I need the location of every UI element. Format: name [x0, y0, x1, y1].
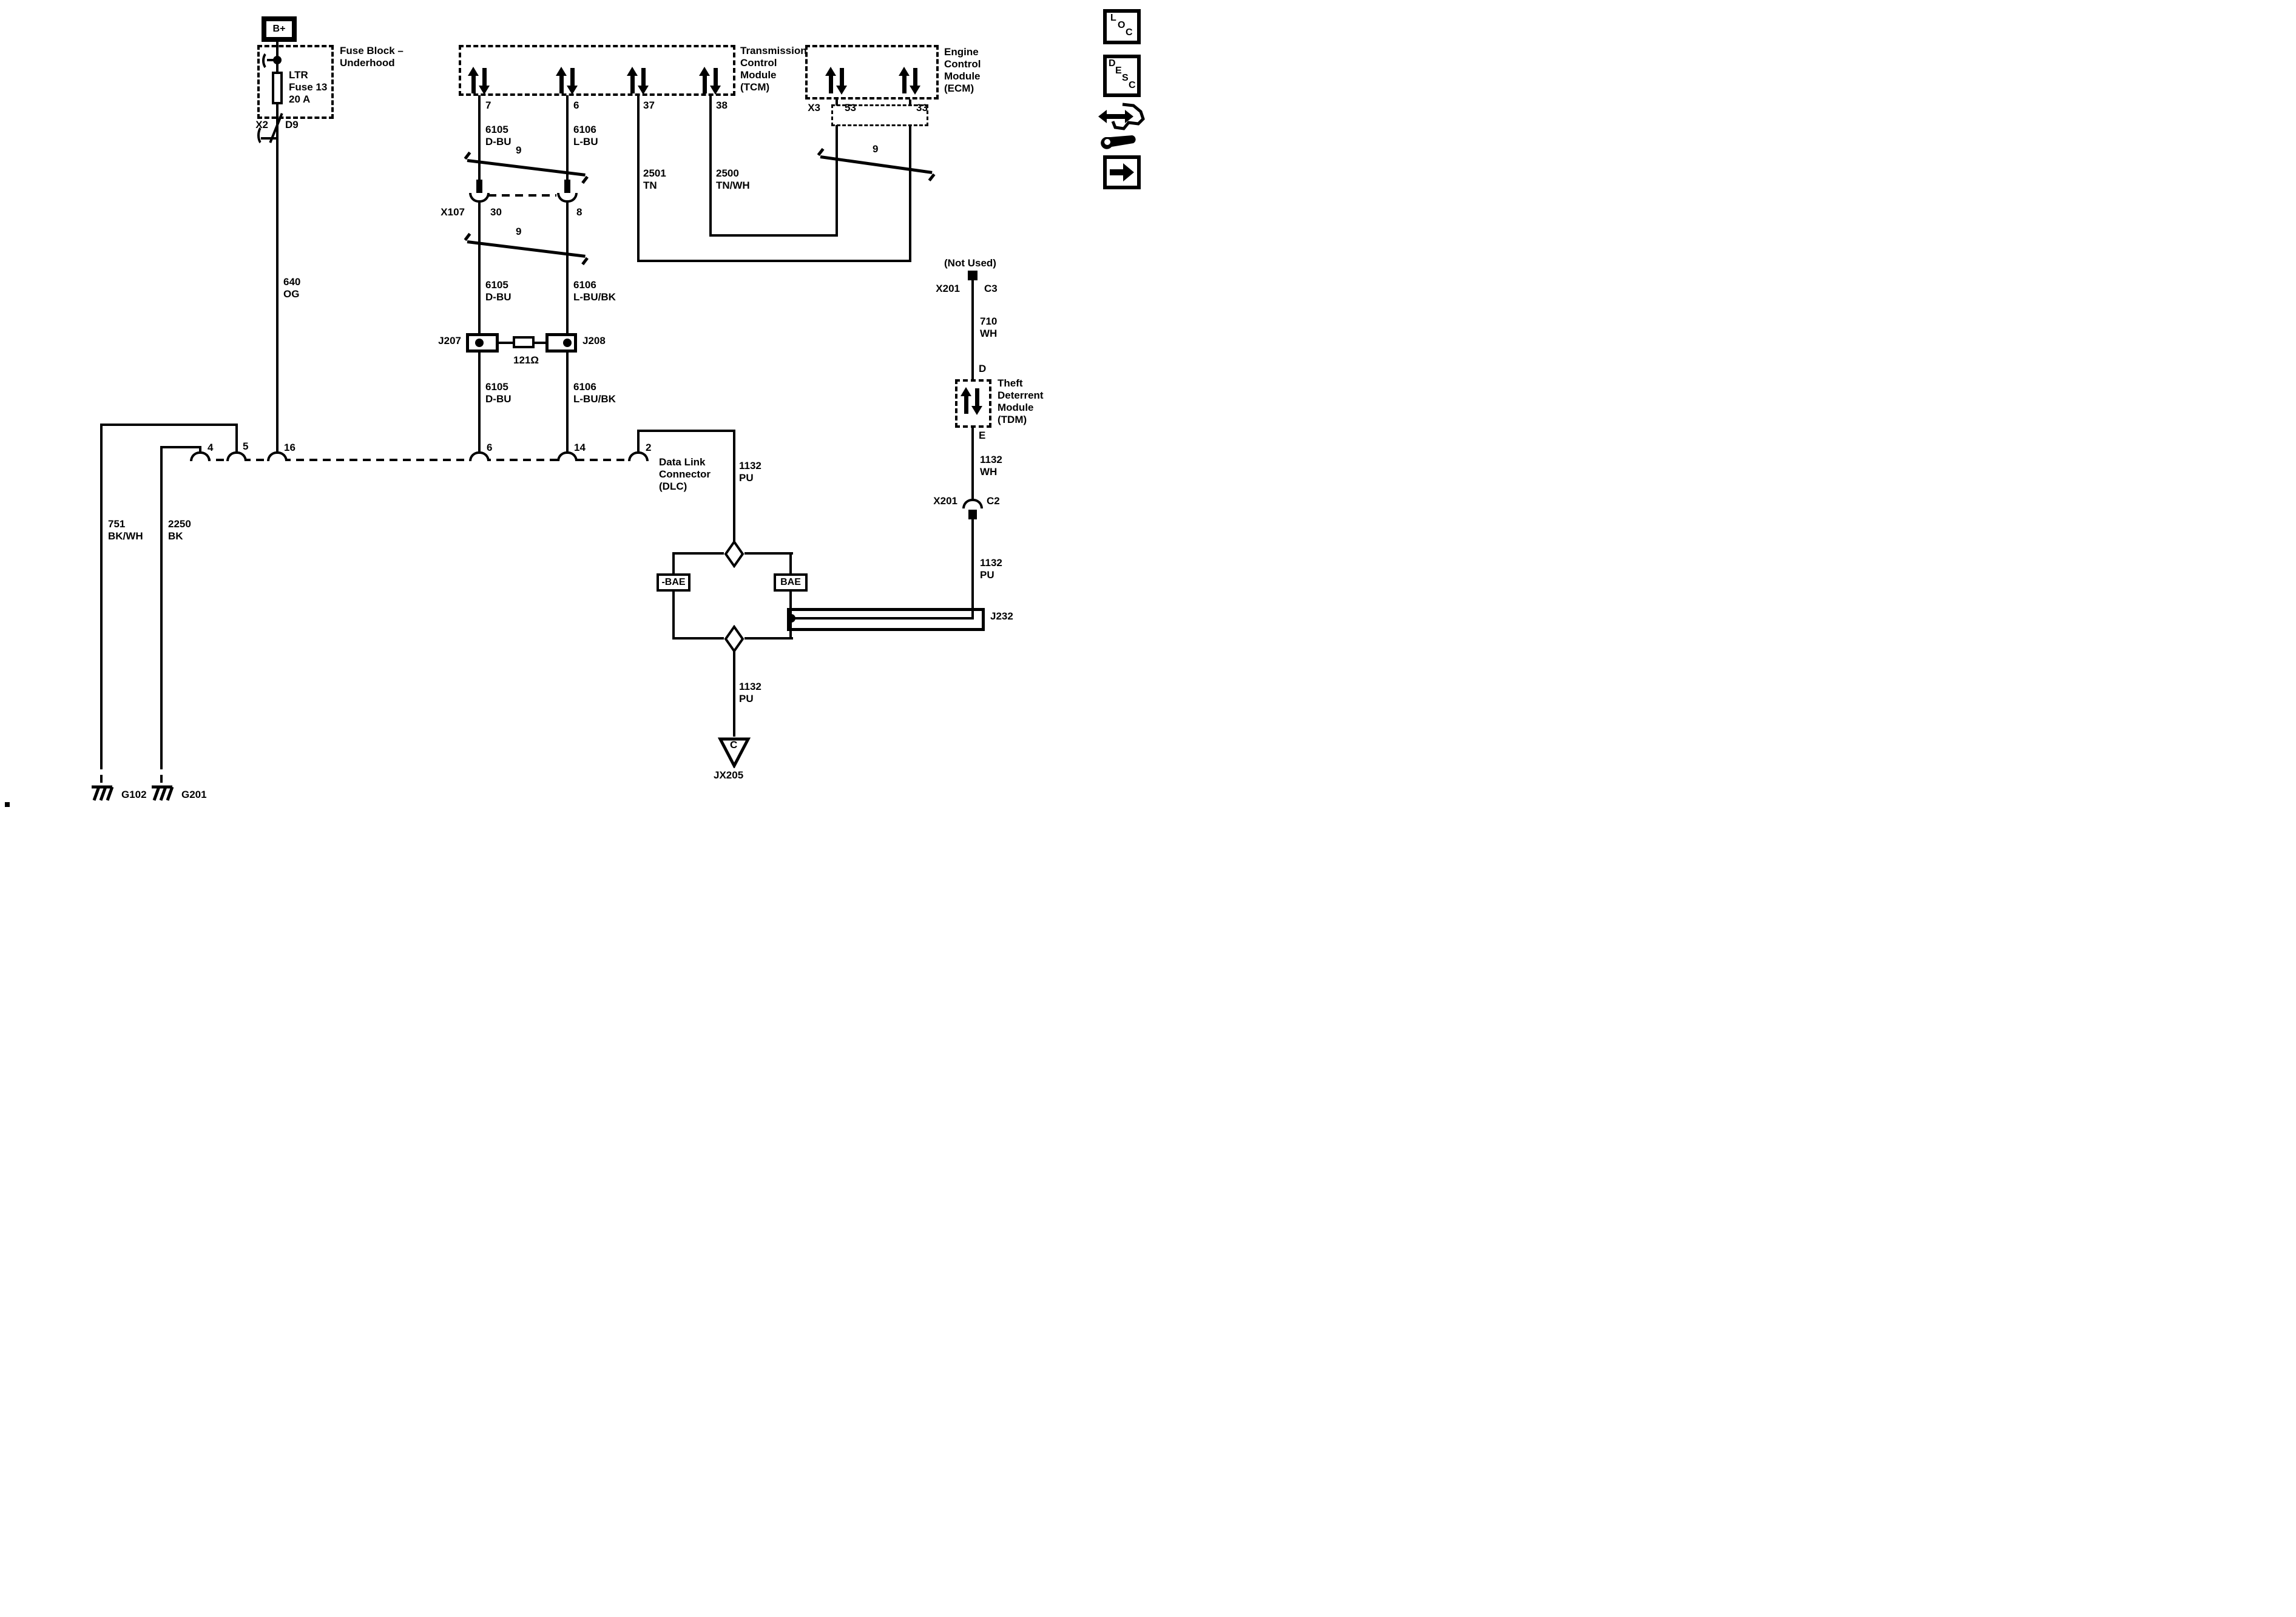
tcm-title: Transmission Control Module (TCM): [740, 45, 807, 93]
wire-1132-pu-label-bottom: 1132 PU: [739, 681, 761, 705]
wire-6105-lower: [478, 353, 481, 451]
x107-pin8-stub: [564, 180, 570, 193]
j208-junction-dot: [563, 339, 572, 347]
wire-2250-dashed: [160, 761, 163, 786]
resistor-value-label: 121Ω: [513, 354, 539, 366]
j208-label: J208: [582, 335, 606, 347]
wire-2500-up: [836, 125, 838, 237]
wire-710-wh: [971, 280, 974, 380]
x2-d9-tick: [261, 137, 277, 140]
twisted-pair-label-2: 9: [516, 226, 521, 238]
fuse-label: LTR Fuse 13 20 A: [289, 69, 327, 106]
forward-arrow-button[interactable]: [1103, 155, 1141, 189]
wire-2500-across: [709, 234, 838, 237]
tcm-pin6-arrows-icon: [556, 68, 578, 95]
wire-2250-top: [160, 446, 201, 448]
desc-button[interactable]: D E S C: [1103, 55, 1141, 97]
tdm-pin-e-label: E: [979, 430, 985, 442]
splice-diamond-top-icon: [724, 540, 745, 568]
wire-2500-down: [709, 95, 712, 237]
wire-1132-wh-label: 1132 WH: [980, 454, 1002, 478]
fuse-junction-dot: [273, 56, 282, 64]
dlc-pin14-label: 14: [574, 442, 586, 454]
wiring-diagram-canvas: B+ Fuse Block – Underhood LTR Fuse 13 20…: [0, 0, 1148, 809]
dlc-pin5-label: 5: [243, 441, 248, 453]
tcm-pin7-arrows-icon: [468, 68, 490, 95]
tcm-pin38-label: 38: [716, 100, 728, 112]
wire-640-og: [276, 119, 279, 451]
tdm-title: Theft Deterrent Module (TDM): [998, 377, 1044, 426]
x201-c2-terminal-stub: [968, 510, 977, 519]
tdm-pin-d-label: D: [979, 363, 986, 375]
loc-letter-c: C: [1126, 27, 1133, 38]
wire-6105-mid: [478, 203, 481, 333]
tcm-pin37-arrows-icon: [627, 68, 649, 95]
not-used-terminal: [968, 271, 977, 280]
x107-pin30-label: 30: [490, 206, 502, 218]
wire-710-label: 710 WH: [980, 316, 997, 340]
wire-1132-wh: [971, 428, 974, 500]
wire-1132-pu-right: [971, 519, 974, 619]
wire-6106-label-2: 6106 L-BU/BK: [573, 279, 616, 303]
j232-label: J232: [990, 610, 1013, 623]
bae-left-drop2: [672, 592, 675, 638]
ecm-pin53-label: 53: [845, 102, 856, 114]
j208-splice-pack: [545, 333, 577, 353]
twisted-pair-label-1: 9: [516, 144, 521, 157]
wire-751-top: [100, 424, 238, 426]
fuse-block-title: Fuse Block – Underhood: [340, 45, 403, 69]
tcm-pin7-label: 7: [485, 100, 491, 112]
ecm-pin33-arrows-icon: [899, 68, 921, 95]
desc-letter-e: E: [1115, 66, 1122, 76]
x201-c2-pin-label: C2: [987, 495, 1000, 507]
splice-diamond-bottom-icon: [724, 625, 745, 653]
wire-2501-down: [637, 95, 640, 262]
bae-branch-left-bottom: [672, 637, 724, 640]
wire-751-down: [100, 426, 103, 761]
resistor-lead-left: [498, 342, 514, 344]
j207-label: J207: [417, 335, 461, 347]
x2-d9-hook-icon: [257, 125, 269, 146]
bae-neg-label: -BAE: [661, 577, 685, 588]
wire-640-label: 640 OG: [283, 276, 300, 300]
connector-d9-label: D9: [285, 119, 299, 131]
vehicle-wrench-icon[interactable]: [1098, 101, 1147, 152]
bae-right-drop: [789, 552, 792, 573]
ecm-pin33-label: 33: [916, 102, 928, 114]
dlc-pin5-connector-icon: [226, 451, 247, 461]
dlc-pin2-label: 2: [646, 442, 651, 454]
wire-6105-upper: [478, 95, 481, 180]
bae-branch-right-top: [745, 552, 793, 555]
tdm-arrows-icon: [961, 388, 983, 415]
j232-junction-dot: [787, 614, 795, 623]
j232-internal-line: [791, 617, 974, 619]
bae-pos-label: BAE: [780, 577, 801, 588]
wire-751-dashed: [100, 761, 103, 786]
bplus-terminal: B+: [262, 16, 297, 42]
wire-2250-label: 2250 BK: [168, 518, 191, 542]
loc-button[interactable]: L O C: [1103, 9, 1141, 44]
ecm-x3-label: X3: [782, 102, 820, 114]
loc-letter-o: O: [1118, 20, 1125, 31]
j232-splice-pack: [787, 608, 985, 631]
wire-1132-pin2-stub: [637, 432, 640, 451]
wire-751-label: 751 BK/WH: [108, 518, 143, 542]
wire-2250-down: [160, 448, 163, 761]
desc-letter-c: C: [1129, 80, 1136, 91]
ground-g201-icon: [149, 783, 177, 802]
tcm-pin38-arrows-icon: [700, 68, 721, 95]
loc-letter-l: L: [1110, 13, 1116, 24]
x107-pin8-label: 8: [576, 206, 582, 218]
wire-6106-label-3: 6106 L-BU/BK: [573, 381, 616, 405]
desc-letter-s: S: [1122, 73, 1129, 84]
x201-c3-pin-label: C3: [984, 283, 998, 295]
wire-1132-to-jx205: [733, 650, 735, 737]
bae-branch-right-bottom: [745, 637, 793, 640]
ground-g201-label: G201: [181, 789, 207, 801]
x201-c3-connector-label: X201: [921, 283, 960, 295]
wire-2501-up: [909, 125, 911, 262]
jx205-label: JX205: [714, 769, 743, 781]
x107-pin30-stub: [476, 180, 482, 193]
bae-pos-box: BAE: [774, 573, 808, 592]
wire-1132-pu-label-dlc: 1132 PU: [739, 460, 761, 484]
terminating-resistor: [513, 336, 535, 348]
wire-1132-pin2-down: [733, 432, 735, 541]
wire-6106-upper: [566, 95, 569, 180]
wire-6106-lower: [566, 353, 569, 451]
wire-6105-label-2: 6105 D-BU: [485, 279, 512, 303]
ground-g102-icon: [89, 783, 117, 802]
dlc-pin4-label: 4: [208, 442, 213, 454]
bae-branch-left-top: [675, 552, 724, 555]
forward-arrow-icon: [1107, 160, 1136, 185]
x107-label: X107: [419, 206, 465, 218]
wire-2501-label: 2501 TN: [643, 167, 666, 192]
page-dot: [5, 802, 10, 807]
wire-751-pin5-stub: [235, 426, 238, 451]
ecm-title: Engine Control Module (ECM): [944, 46, 981, 95]
x201-c2-connector-label: X201: [919, 495, 957, 507]
x107-pin8-connector-icon: [557, 193, 578, 203]
dlc-pin6-label: 6: [487, 442, 492, 454]
desc-letter-d: D: [1109, 58, 1116, 69]
ground-g102-label: G102: [121, 789, 147, 801]
wire-1132-pin2-across: [637, 430, 735, 432]
bplus-label: B+: [273, 24, 286, 35]
wire-6105-label-3: 6105 D-BU: [485, 381, 512, 405]
resistor-lead-right: [533, 342, 547, 344]
wire-6105-label-1: 6105 D-BU: [485, 124, 512, 148]
dlc-title: Data Link Connector (DLC): [659, 456, 711, 493]
tcm-box: [459, 45, 735, 96]
x107-connector-line: [488, 194, 556, 197]
wire-2500-label: 2500 TN/WH: [716, 167, 750, 192]
bae-neg-box: -BAE: [657, 573, 690, 592]
twisted-pair-label-3: 9: [873, 143, 878, 155]
wire-6106-mid: [566, 203, 569, 333]
bae-left-drop: [672, 552, 675, 573]
wire-2501-across: [637, 260, 911, 262]
wire-1132-pu-right-label: 1132 PU: [980, 557, 1002, 581]
dlc-pin16-label: 16: [284, 442, 295, 454]
jx205-pin-label: C: [730, 739, 737, 751]
ecm-pin53-arrows-icon: [826, 68, 848, 95]
tcm-pin6-label: 6: [573, 100, 579, 112]
wire-6106-label-1: 6106 L-BU: [573, 124, 598, 148]
tcm-pin37-label: 37: [643, 100, 655, 112]
fuse-symbol: [272, 72, 283, 104]
x107-pin30-connector-icon: [469, 193, 490, 203]
not-used-label: (Not Used): [944, 257, 996, 269]
j207-junction-dot: [475, 339, 484, 347]
x201-c2-connector-icon: [962, 499, 983, 508]
